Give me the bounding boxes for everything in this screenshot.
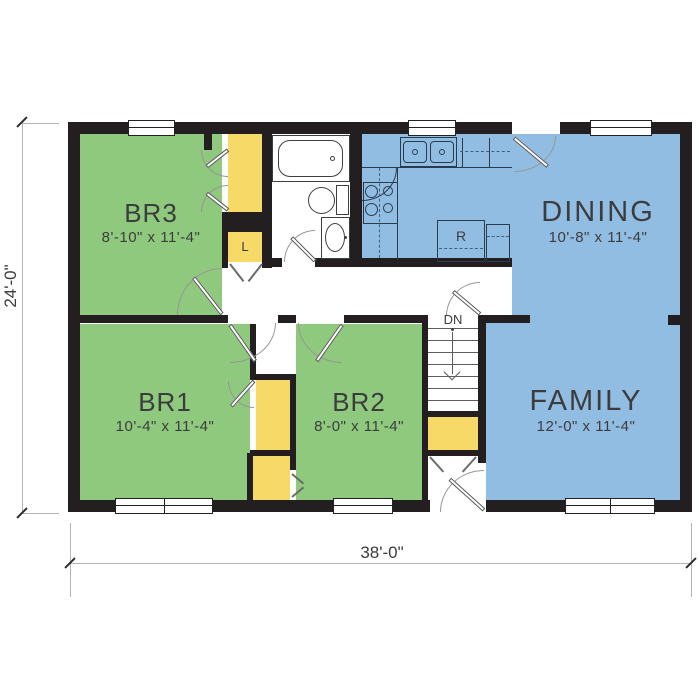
wall [668,315,680,325]
stove-burner [383,186,393,196]
extension-line [23,513,59,514]
wall [262,134,272,268]
entry-closet-bifold [429,456,444,472]
label-family-size: 12'-0" x 11'-4" [486,418,686,435]
stair-tread [428,352,478,353]
stove-burner [365,203,378,216]
label-br3-size: 8'-10" x 11'-4" [81,229,221,246]
bathroom-sink [325,223,345,252]
wall [428,450,478,456]
wall [350,134,362,266]
wall [428,411,478,417]
label-family: FAMILY [486,385,686,418]
toilet-tank [336,185,349,215]
kitchen-cabinet-divider [489,138,490,167]
linen-closet-bifold [248,263,263,282]
window [565,498,655,514]
stove-burner [365,185,378,198]
extension-line [23,123,59,124]
label-br2-size: 8'-0" x 11'-4" [286,418,432,435]
window [333,498,393,514]
wall [486,315,530,323]
sink-drain [439,149,445,155]
wall [478,315,486,463]
label-br3: BR3 [81,198,221,229]
stair-arrow-dot [451,328,454,331]
wall [290,456,296,470]
closet-br2 [253,456,290,500]
sink-drain [412,149,418,155]
window [115,498,213,514]
refrigerator-dashed [439,248,483,249]
overall-depth-label: 24'-0" [1,251,21,321]
stair-arrow-head [444,364,461,381]
wall [222,212,262,232]
label-linen-closet: L [228,239,262,254]
floor-plan: BR3 8'-10" x 11'-4" BR1 10'-4" x 11'-4" … [0,0,700,700]
upper-cabinet-dashed [460,151,510,152]
sink-faucet-dot [344,236,347,239]
closet-br1 [256,380,290,450]
wall [422,315,428,500]
stair-tread [428,400,478,401]
stair-tread [428,388,478,389]
kitchen-cabinet-divider [462,138,463,167]
wall [204,134,212,150]
label-dining: DINING [498,196,698,229]
label-refrigerator: R [437,228,485,244]
window [590,120,652,136]
stair-tread [428,340,478,341]
label-br1-size: 10'-4" x 11'-4" [80,418,250,435]
stove-burner [383,203,393,213]
wall [68,315,228,323]
label-br2: BR2 [296,387,422,418]
label-dining-size: 10'-8" x 11'-4" [498,229,698,246]
window [128,120,175,136]
dimension-line-bottom [70,563,692,564]
label-stairs-down: DN [438,312,468,327]
wall [344,315,428,323]
bathtub-drain [330,156,335,161]
closet-br3 [228,134,262,212]
window [408,120,456,136]
label-br1: BR1 [80,387,250,418]
overall-width-label: 38'-0" [322,543,442,561]
wall-exterior-right [680,122,692,512]
back-door-opening [512,122,560,134]
wall [262,258,282,267]
linen-closet-bifold [229,263,244,282]
wall [278,315,296,323]
closet-entry [428,417,478,450]
dimension-line-left [22,122,23,514]
wall [247,453,253,500]
toilet-bowl [308,187,335,214]
room-dining-lower [512,262,680,318]
